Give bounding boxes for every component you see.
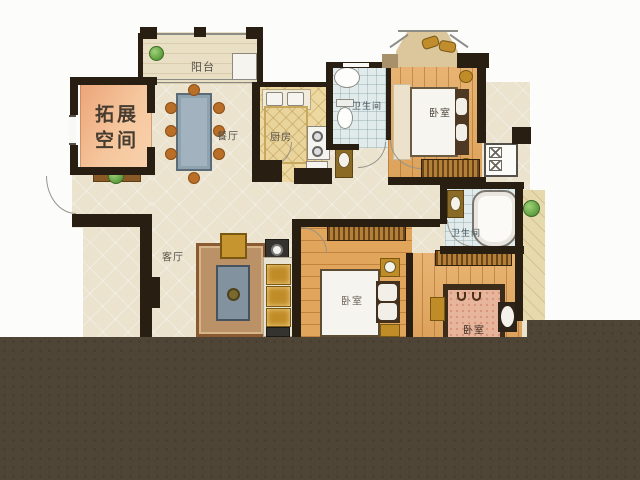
- kitchen-sink: [287, 92, 304, 106]
- wall-right-lower: [515, 254, 523, 321]
- wall-bath-mid-right: [515, 189, 523, 247]
- living-speaker-cone: [271, 244, 283, 256]
- bath-top-window: [343, 63, 369, 67]
- living-sofa-cushion: [266, 286, 291, 307]
- bathroom-top-sink: [334, 67, 360, 88]
- wall-balcony-pillar: [194, 27, 206, 37]
- wall-balcony-left: [138, 33, 143, 83]
- bedroom-br-pillow-curl: [472, 292, 481, 301]
- wall-bath-top-bottom: [331, 144, 359, 150]
- wall-bath-bedroom-tr: [386, 67, 391, 140]
- wall-bedroom-tr-right: [477, 67, 486, 143]
- wall-expansion-bottom: [70, 167, 154, 175]
- wall-kitchen-bottom-right: [294, 168, 332, 184]
- label-bath-mid: 卫生间: [451, 228, 481, 238]
- wall-balcony-right: [257, 33, 263, 83]
- bedroom-mid-nightstand-top: [384, 261, 396, 273]
- dining-chair: [165, 125, 177, 137]
- wall-kitchen-bottom-left: [252, 160, 282, 182]
- dining-chair: [213, 102, 225, 114]
- wall-bath-mid-left: [440, 189, 447, 224]
- wall-bath-mid-top: [440, 182, 524, 189]
- label-bath-top: 卫生间: [352, 101, 382, 111]
- living-speaker: [266, 327, 290, 337]
- label-bedroom-bottom-right: 卧室: [463, 325, 485, 337]
- dining-chair: [165, 102, 177, 114]
- label-bedroom-top-right: 卧室: [429, 108, 451, 120]
- plant-niche: [523, 200, 540, 217]
- plant-balcony: [149, 46, 164, 61]
- label-living: 客厅: [162, 252, 184, 264]
- wall-bath-mid-bottom: [440, 246, 524, 254]
- wall-expansion-right: [147, 85, 155, 113]
- living-tv-stand: [220, 233, 247, 259]
- wall-entry-corner: [72, 214, 152, 227]
- label-balcony: 阳台: [191, 62, 215, 75]
- bedroom-mid-nightstand: [380, 324, 400, 337]
- wall-kitchen-bath: [326, 62, 333, 150]
- bedroom-mid-pillow: [378, 284, 397, 301]
- wall-dining-kitchen: [252, 82, 260, 168]
- entry-door-arc: [46, 176, 76, 214]
- wall-bay-stub-right: [457, 53, 489, 68]
- bathroom-top-toilet: [337, 107, 353, 129]
- dining-chair: [188, 172, 200, 184]
- bedroom-mid-wardrobe: [327, 226, 406, 241]
- wall-bedroom-mid-left: [292, 227, 301, 337]
- bay-window-line: [398, 30, 458, 32]
- floorplan-canvas: 拓展 空间 阳台 餐厅 厨房 卫生间 卧室 客厅 卫生间 卧室 卧室: [0, 0, 640, 480]
- living-sofa-cushion: [266, 308, 291, 327]
- bedroom-br-pillow-curl: [457, 292, 466, 301]
- label-bedroom-mid: 卧室: [341, 296, 363, 308]
- expansion-window: [69, 115, 76, 145]
- bedroom-mid-pillow: [378, 303, 397, 320]
- bathroom-mid-basin-bowl: [450, 196, 461, 211]
- wall-shaft-block: [512, 127, 531, 144]
- wall-living-pillar: [152, 277, 160, 308]
- wall-bedroom-mid-top: [292, 219, 440, 227]
- kitchen-sink: [266, 92, 283, 106]
- label-expansion-line1: 拓展: [95, 102, 139, 128]
- living-sofa-cushion: [266, 264, 291, 285]
- label-expansion-line2: 空间: [95, 128, 139, 154]
- living-table-centerpiece: [227, 288, 240, 301]
- shaft-window-icon: [489, 147, 502, 158]
- label-expansion-room: 拓展 空间: [95, 102, 139, 153]
- shaft-window-icon: [489, 160, 502, 171]
- wall-kitchen-top: [256, 82, 332, 87]
- overlay-bottom-block: [0, 337, 640, 480]
- dining-chair: [165, 148, 177, 160]
- wall-bedroom-divider: [406, 253, 413, 337]
- dining-chair: [213, 148, 225, 160]
- label-dining: 餐厅: [217, 131, 239, 143]
- stove-burner: [312, 146, 323, 157]
- bathroom-mid-tub: [472, 190, 518, 248]
- bedroom-br-nightstand-top: [501, 306, 514, 327]
- balcony-cabinet: [232, 53, 257, 80]
- bedroom-tr-pillow: [456, 98, 467, 115]
- stove-burner: [312, 131, 323, 142]
- corridor-washstand-bowl: [338, 152, 350, 168]
- dining-chair: [188, 84, 200, 96]
- wall-bay-stub-left: [382, 54, 398, 68]
- bedroom-br-nightstand: [430, 297, 445, 321]
- bedroom-tr-pillow: [456, 124, 467, 141]
- balcony-slider-door: [152, 79, 256, 83]
- wall-expansion-left: [70, 85, 78, 115]
- label-kitchen: 厨房: [270, 132, 292, 144]
- dining-table: [176, 93, 212, 171]
- bedroom-tr-nightstand: [459, 70, 473, 83]
- wall-expansion-top: [70, 77, 157, 85]
- wall-living-left: [140, 227, 152, 337]
